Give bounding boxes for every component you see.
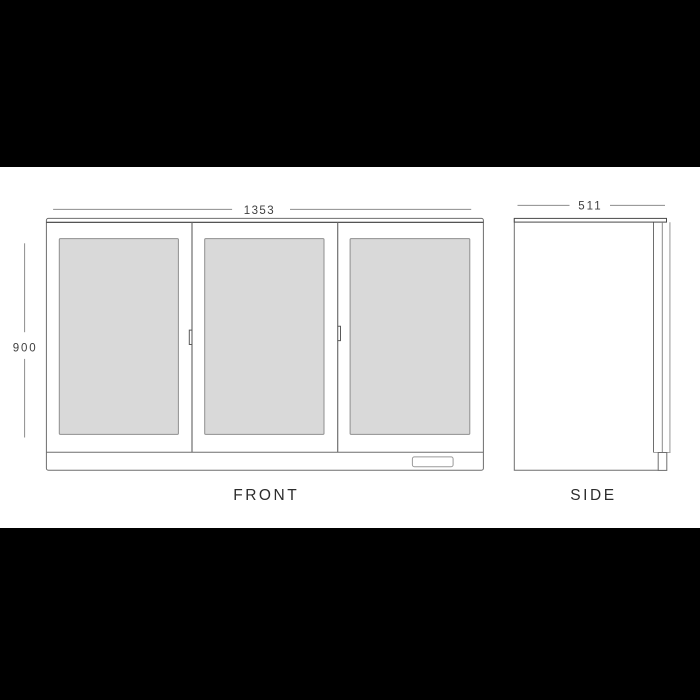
svg-text:SIDE: SIDE (570, 487, 617, 504)
svg-text:511: 511 (578, 201, 602, 213)
svg-text:900: 900 (13, 343, 37, 355)
svg-text:1353: 1353 (244, 205, 275, 217)
svg-text:FRONT: FRONT (233, 487, 299, 504)
